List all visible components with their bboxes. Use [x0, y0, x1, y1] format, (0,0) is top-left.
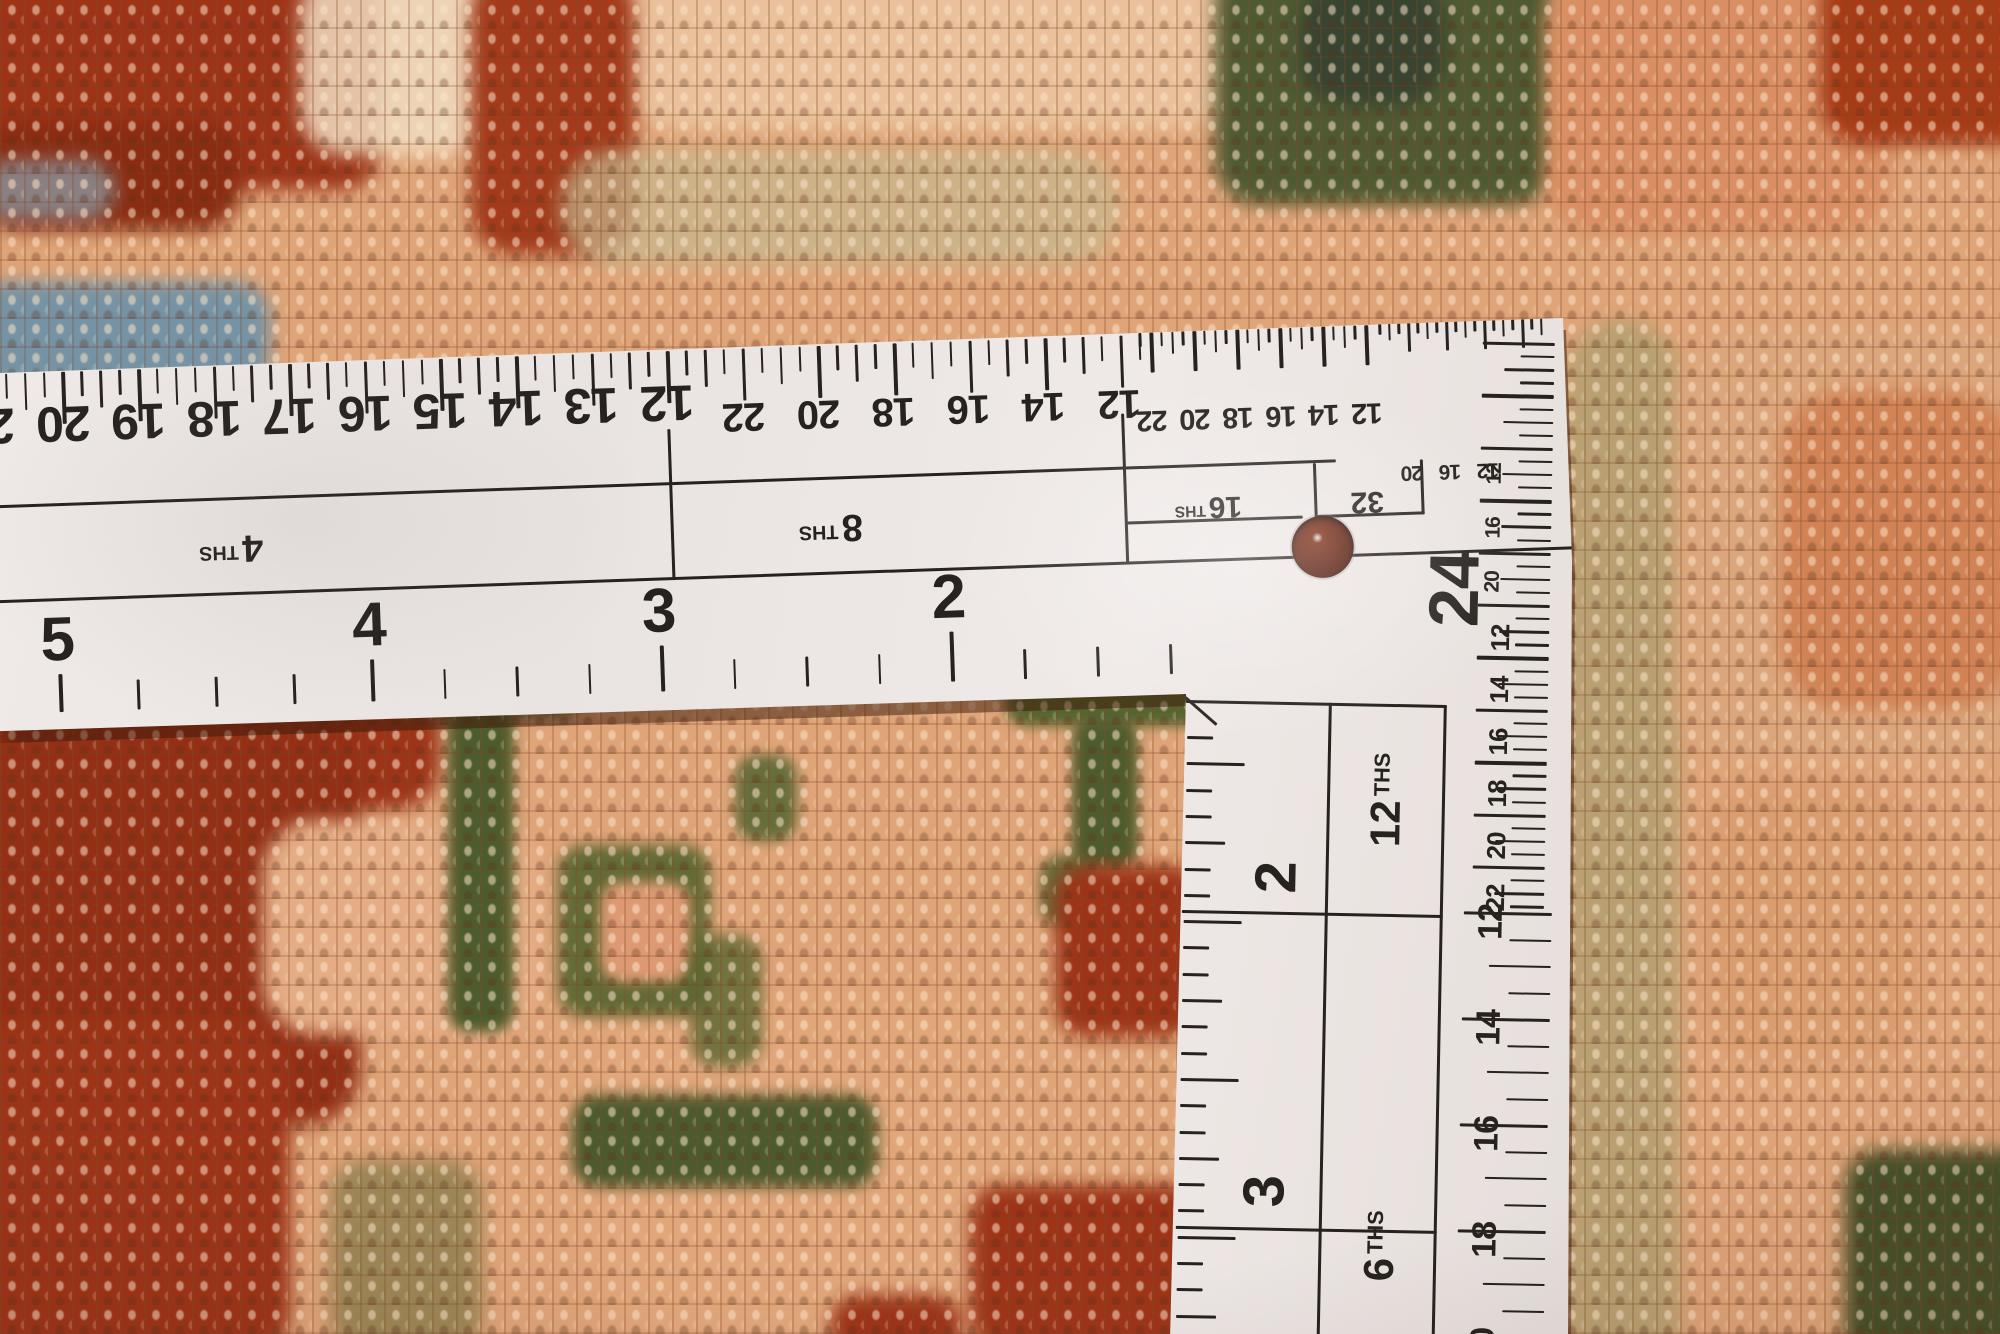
- tick-mark: [647, 352, 650, 377]
- tick-mark: [1475, 761, 1547, 766]
- tick-mark: [1044, 338, 1049, 390]
- tick-mark: [1473, 866, 1545, 871]
- scale-number: 12: [1098, 383, 1142, 424]
- tick-mark: [1177, 1262, 1203, 1265]
- tick-mark: [1100, 336, 1103, 361]
- tick-mark: [760, 348, 763, 373]
- tick-mark: [1520, 408, 1554, 411]
- tick-mark: [1025, 339, 1028, 364]
- scale-rule-line: [1315, 511, 1425, 518]
- tick-mark: [439, 359, 444, 411]
- tick-mark: [741, 349, 746, 401]
- tick-mark: [1268, 329, 1271, 343]
- tick-mark: [1502, 1310, 1544, 1313]
- tick-mark: [836, 345, 839, 370]
- edge-inch-number: 18: [1467, 1222, 1502, 1258]
- tick-mark: [1507, 1045, 1549, 1048]
- tick-mark: [1214, 330, 1217, 352]
- tick-mark: [1498, 683, 1548, 686]
- edge-inch-number: 14: [1486, 676, 1513, 703]
- tick-mark: [1397, 322, 1400, 334]
- tick-mark: [1464, 320, 1467, 338]
- tick-mark: [1096, 647, 1100, 677]
- tick-mark: [288, 364, 293, 416]
- tick-mark: [458, 358, 461, 383]
- tick-mark: [1489, 965, 1551, 969]
- carpet-motif-green-bottom-right: [1845, 1150, 2000, 1334]
- tick-mark: [1521, 318, 1526, 348]
- carpet-motif-olive-right-column: [1565, 320, 1680, 1334]
- tick-mark: [1499, 630, 1549, 633]
- tick-mark: [1184, 894, 1210, 897]
- tick-mark: [1180, 1104, 1206, 1107]
- edge-inch-number: 12: [1487, 624, 1514, 651]
- scale-number: 17: [262, 390, 317, 442]
- scale-label: 8THS: [798, 508, 863, 548]
- scale-number: 12: [1352, 397, 1383, 427]
- tick-mark: [1505, 1151, 1547, 1154]
- tick-mark: [1178, 1236, 1236, 1240]
- tick-mark: [1506, 1098, 1548, 1101]
- tick-mark: [911, 343, 914, 368]
- tick-mark: [1510, 906, 1544, 909]
- carpet-motif-salmon-right-3: [1700, 780, 1925, 1065]
- tick-mark: [779, 347, 783, 384]
- tick-mark: [1497, 735, 1547, 738]
- tick-mark: [893, 343, 898, 395]
- tick-mark: [1278, 328, 1283, 368]
- tick-mark: [1479, 551, 1551, 556]
- tick-mark: [1540, 317, 1543, 335]
- inner-inch-number: 3: [1235, 1175, 1294, 1207]
- tick-mark: [1458, 1229, 1546, 1234]
- tick-mark: [1504, 368, 1554, 371]
- scale-number: 22: [722, 396, 766, 437]
- edge-inch-number: 16: [1485, 728, 1512, 755]
- tick-mark: [1483, 319, 1488, 349]
- tick-mark: [477, 358, 481, 395]
- tick-mark: [293, 674, 297, 704]
- tick-mark: [1160, 332, 1163, 346]
- tick-mark: [723, 349, 726, 374]
- tick-mark: [443, 669, 447, 699]
- tick-mark: [1500, 578, 1550, 581]
- tick-mark: [1519, 434, 1553, 437]
- edge-inch-number: 20: [1465, 1328, 1500, 1334]
- scale-number: 12: [1477, 459, 1499, 481]
- tick-mark: [1178, 1209, 1204, 1212]
- inner-inch-number: 2: [1247, 862, 1306, 894]
- tick-mark: [1495, 840, 1545, 843]
- scale-label: 12THS: [1364, 752, 1408, 847]
- carpet-motif-sage-row: [560, 150, 1120, 265]
- scale-rule-line: [1182, 910, 1443, 918]
- tick-mark: [1184, 920, 1242, 924]
- scale-number: 18: [872, 391, 916, 432]
- tick-mark: [515, 356, 520, 408]
- tick-mark: [345, 362, 348, 387]
- carpet-motif-green-col-lower: [690, 935, 762, 1067]
- scale-number: 20: [797, 393, 841, 434]
- tick-mark: [1180, 1130, 1206, 1133]
- tick-mark: [1203, 331, 1206, 345]
- edge-inch-number: 14: [1471, 1010, 1506, 1046]
- tick-mark: [1364, 325, 1369, 365]
- scale-label: 4THS: [198, 528, 263, 568]
- tick-mark: [137, 369, 142, 421]
- tick-mark: [1502, 319, 1505, 337]
- tick-mark: [1476, 708, 1548, 713]
- tick-mark: [1519, 460, 1553, 463]
- tick-mark: [1474, 813, 1546, 818]
- scale-number: 14: [489, 382, 544, 434]
- carpet-motif-blue-left-small: [0, 160, 115, 220]
- tick-mark: [1511, 318, 1514, 330]
- tick-mark: [1477, 656, 1549, 661]
- tick-mark: [817, 346, 822, 398]
- tick-mark: [1502, 473, 1552, 476]
- tick-mark: [24, 373, 28, 410]
- tick-mark: [878, 654, 882, 684]
- tick-mark: [588, 664, 592, 694]
- tick-mark: [805, 657, 809, 687]
- tick-major: [949, 632, 954, 682]
- tick-mark: [1454, 320, 1457, 332]
- scale-number: 16: [338, 388, 393, 440]
- tick-mark: [364, 361, 369, 413]
- tick-mark: [1513, 748, 1547, 751]
- tick-mark: [628, 352, 632, 389]
- tick-mark: [1378, 323, 1381, 335]
- scale-rule-line: [1313, 463, 1318, 518]
- edge-inch-number: 20: [1483, 832, 1510, 859]
- tick-mark: [1518, 486, 1552, 489]
- tick-mark: [733, 659, 737, 689]
- edge-inch-number: 12: [1484, 463, 1505, 485]
- tick-mark: [1354, 326, 1357, 340]
- tick-mark: [1530, 318, 1533, 330]
- scale-rule-line: [1317, 703, 1332, 1334]
- tick-mark: [1289, 328, 1292, 342]
- tick-mark: [1481, 446, 1553, 451]
- tick-mark: [553, 355, 557, 392]
- tick-mark: [61, 372, 66, 424]
- tick-mark: [987, 340, 990, 365]
- carpet-motif-red-bottom-center: [830, 1295, 962, 1334]
- tick-mark: [99, 371, 103, 408]
- carpet-motif-green-T-stem: [448, 700, 514, 1032]
- scale-number: 16: [1439, 461, 1461, 483]
- tick-mark: [137, 679, 141, 709]
- scale-number: 19: [111, 395, 166, 447]
- tick-mark: [1517, 539, 1551, 542]
- photo-of-framing-square-on-rug: 2120191817161514131222201816141222201816…: [0, 0, 2000, 1334]
- scale-number: 12: [640, 377, 695, 429]
- tick-mark: [1182, 1025, 1208, 1028]
- tick-mark: [1182, 999, 1222, 1003]
- tick-mark: [1504, 1204, 1546, 1207]
- tick-mark: [1183, 946, 1209, 949]
- carpet-motif-red-top-right-corner: [1820, 0, 2000, 145]
- tick-mark: [1478, 604, 1550, 609]
- scale-number: 20: [1401, 462, 1423, 484]
- tick-mark: [1181, 1078, 1239, 1082]
- tick-mark: [1503, 421, 1553, 424]
- tick-mark: [1462, 1017, 1550, 1022]
- scale-rule-line: [1127, 516, 1303, 525]
- tick-mark: [1473, 319, 1476, 331]
- tick-mark: [1081, 337, 1085, 374]
- carpet-wash-top-middle: [620, 0, 1240, 130]
- carpet-motif-green-bar-lower: [572, 1095, 877, 1187]
- scale-rule-line: [0, 546, 1581, 604]
- tick-major: [370, 659, 375, 701]
- tick-mark: [571, 354, 574, 379]
- edge-inch-number: 18: [1484, 780, 1511, 807]
- tick-mark: [118, 370, 121, 395]
- tick-mark: [1521, 355, 1555, 358]
- carpet-motif-salmon-in-green-box: [600, 882, 690, 982]
- tick-mark: [156, 369, 159, 394]
- tick-mark: [1426, 321, 1429, 339]
- tick-mark: [968, 341, 973, 393]
- scale-number: 15: [413, 385, 468, 437]
- tick-mark: [1300, 327, 1303, 349]
- scale-number: 18: [1223, 402, 1254, 432]
- tick-mark: [1139, 333, 1142, 347]
- scale-rule-line: [667, 429, 675, 580]
- tick-mark: [1179, 1157, 1219, 1161]
- carpet-motif-green-top-right-dark: [1300, 0, 1445, 105]
- bottom-inch-number: 4: [351, 594, 387, 657]
- tick-mark: [1515, 644, 1549, 647]
- carpet-motif-cream-stripe: [300, 0, 490, 155]
- tick-mark: [1388, 322, 1391, 340]
- tick-mark: [383, 361, 386, 386]
- tick-mark: [250, 365, 254, 402]
- tick-mark: [231, 366, 234, 391]
- bottom-inch-number: 5: [39, 609, 75, 672]
- tick-mark: [874, 344, 877, 369]
- edge-inch-number: 20: [1482, 571, 1503, 593]
- tick-mark: [1511, 827, 1545, 830]
- scale-number: 16: [1266, 400, 1297, 430]
- tick-mark: [1407, 322, 1412, 352]
- tick-mark: [43, 372, 46, 397]
- tick-mark: [798, 347, 801, 372]
- tick-mark: [1149, 333, 1154, 373]
- tick-mark: [1494, 892, 1544, 895]
- scale-rule-line: [1420, 459, 1425, 514]
- scale-label: 16THS: [1174, 491, 1242, 523]
- tick-mark: [1187, 736, 1213, 739]
- bottom-inch-number: 3: [641, 580, 677, 643]
- scale-number: 20: [36, 398, 91, 450]
- tick-major: [660, 645, 665, 691]
- carpet-motif-green-7-stem: [1072, 718, 1138, 870]
- tick-mark: [1511, 853, 1545, 856]
- scale-number: 20: [1180, 403, 1211, 433]
- tick-mark: [1332, 326, 1335, 340]
- scale-number: 13: [564, 380, 619, 432]
- edge-inch-number: 22: [1482, 884, 1509, 911]
- tick-mark: [1192, 331, 1197, 371]
- tick-mark: [1460, 1123, 1548, 1128]
- tick-mark: [1512, 801, 1546, 804]
- edge-inch-number: 16: [1483, 517, 1504, 539]
- tick-mark: [1181, 1052, 1207, 1055]
- tick-mark: [685, 350, 688, 375]
- tick-mark: [1480, 499, 1552, 504]
- scale-label: 6THS: [1358, 1210, 1401, 1282]
- tick-mark: [1496, 787, 1546, 790]
- tick-mark: [1235, 330, 1240, 370]
- tick-mark: [1520, 382, 1554, 385]
- tick-mark: [213, 367, 218, 419]
- tick-mark: [1186, 815, 1212, 818]
- tick-mark: [534, 356, 537, 381]
- tick-mark: [1225, 330, 1228, 344]
- scale-number: 14: [1022, 386, 1066, 427]
- tick-mark: [215, 677, 219, 707]
- scale-rule-line: [1432, 705, 1447, 1334]
- tick-major: [58, 674, 63, 712]
- tick-mark: [1512, 775, 1546, 778]
- tick-mark: [1321, 327, 1326, 367]
- tick-mark: [1516, 591, 1550, 594]
- tick-mark: [855, 345, 859, 382]
- edge-inch-number: 12: [1473, 904, 1508, 940]
- tick-mark: [1257, 329, 1260, 351]
- tick-mark: [1483, 342, 1555, 347]
- tick-mark: [1487, 1071, 1549, 1075]
- tick-mark: [496, 357, 499, 382]
- carpet-motif-olive-dots-bottom-left: [330, 1160, 482, 1334]
- tick-mark: [515, 666, 519, 696]
- tick-mark: [1485, 1177, 1547, 1181]
- scale-number: 14: [1309, 399, 1340, 429]
- tick-mark: [1311, 327, 1314, 341]
- bottom-inch-number: 2: [930, 566, 966, 629]
- scale-label: 32: [1350, 486, 1384, 517]
- tick-mark: [1023, 649, 1027, 679]
- tick-mark: [1492, 319, 1495, 331]
- tick-mark: [1171, 332, 1174, 354]
- tick-mark: [949, 341, 952, 366]
- tick-mark: [609, 353, 612, 378]
- tick-mark: [1183, 973, 1209, 976]
- tick-mark: [1185, 868, 1211, 871]
- tick-mark: [1501, 525, 1551, 528]
- tick-mark: [1182, 331, 1185, 345]
- tick-mark: [1513, 722, 1547, 725]
- tick-mark: [5, 374, 8, 399]
- tick-mark: [307, 363, 310, 388]
- tick-mark: [1508, 992, 1550, 995]
- scale-number: 16: [947, 388, 991, 429]
- tick-mark: [1169, 644, 1173, 674]
- tick-mark: [1515, 617, 1549, 620]
- tick-mark: [1246, 329, 1249, 343]
- hang-hole: [1291, 515, 1355, 579]
- tick-mark: [1119, 336, 1124, 388]
- tick-mark: [1176, 1315, 1216, 1319]
- tick-mark: [420, 360, 423, 385]
- tick-mark: [194, 367, 197, 392]
- tick-mark: [1509, 939, 1551, 942]
- tick-mark: [1435, 321, 1438, 333]
- tick-mark: [1503, 1257, 1545, 1260]
- scale-rule-line: [1186, 700, 1447, 708]
- tick-mark: [326, 363, 330, 400]
- corner-24-number: 24: [1418, 551, 1489, 628]
- scale-rule-line: [0, 459, 1336, 509]
- tick-mark: [704, 350, 708, 387]
- tick-mark: [1510, 879, 1544, 882]
- tick-mark: [666, 351, 671, 403]
- tick-mark: [1186, 789, 1212, 792]
- scale-number: 22: [1137, 405, 1168, 435]
- tick-mark: [1343, 326, 1346, 348]
- inner-corner-chamfer: [1184, 696, 1218, 726]
- scale-rule-line: [1121, 414, 1129, 565]
- tick-mark: [1482, 394, 1554, 399]
- tick-mark: [1514, 696, 1548, 699]
- tick-mark: [1416, 321, 1419, 333]
- tick-mark: [1138, 335, 1141, 360]
- tick-mark: [1517, 513, 1551, 516]
- carpet-motif-green-dots-mid: [735, 755, 797, 841]
- scale-number: 21: [0, 401, 16, 453]
- scale-number: 18: [187, 393, 242, 445]
- tick-mark: [1464, 911, 1552, 916]
- tick-mark: [590, 354, 595, 406]
- tick-mark: [1185, 841, 1225, 845]
- tick-mark: [1177, 1288, 1203, 1291]
- carpet-motif-salmon-right-2: [1780, 390, 2000, 710]
- tick-mark: [175, 368, 179, 405]
- tick-mark: [1483, 1283, 1545, 1287]
- tick-mark: [80, 371, 83, 396]
- tick-mark: [1006, 339, 1010, 376]
- tick-mark: [1514, 670, 1548, 673]
- tick-mark: [1516, 565, 1550, 568]
- tick-mark: [1179, 1183, 1205, 1186]
- scale-rule-line: [1176, 1226, 1437, 1234]
- tick-mark: [1063, 338, 1066, 363]
- tick-mark: [401, 360, 405, 397]
- tick-mark: [269, 365, 272, 390]
- carpet-motif-red-left-3: [0, 1020, 290, 1334]
- tick-mark: [1445, 320, 1450, 350]
- tick-mark: [930, 342, 934, 379]
- tick-mark: [1187, 762, 1245, 766]
- edge-inch-number: 16: [1469, 1116, 1504, 1152]
